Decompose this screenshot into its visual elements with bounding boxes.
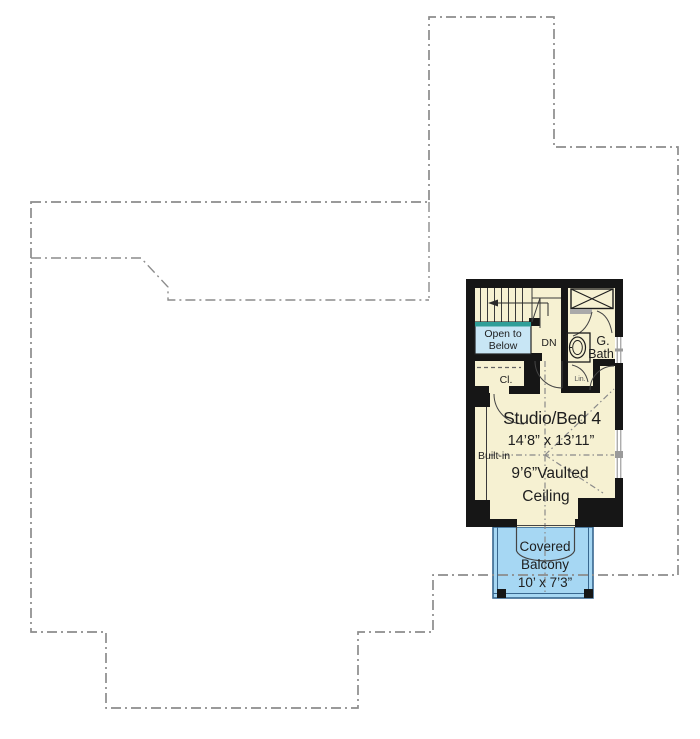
balcony-label-1: Covered bbox=[519, 539, 570, 554]
balcony-post-left bbox=[497, 589, 506, 598]
ceiling-label-1: 9’6”Vaulted bbox=[511, 465, 588, 482]
open-to-below-label-2: Below bbox=[489, 340, 518, 352]
shower-glass bbox=[570, 309, 592, 314]
room-name-label: Studio/Bed 4 bbox=[503, 408, 601, 428]
balcony-dims-label: 10’ x 7’3” bbox=[518, 575, 572, 590]
floor-plan-canvas: Open to Below DN Cl. G. Bath Lin. Studio… bbox=[0, 0, 700, 739]
balcony-post-right bbox=[584, 589, 593, 598]
room-dims-label: 14’8” x 13’11” bbox=[508, 433, 595, 449]
linen-label: Lin. bbox=[574, 376, 585, 383]
window-bath bbox=[615, 337, 623, 363]
open-to-below-edge bbox=[475, 322, 531, 327]
bath-label-2: Bath bbox=[588, 347, 614, 361]
bath-label-1: G. bbox=[596, 334, 609, 348]
window-studio bbox=[615, 430, 623, 478]
built-in-label: Built-in bbox=[478, 450, 510, 462]
ceiling-label-2: Ceiling bbox=[522, 488, 569, 505]
open-to-below-label-1: Open to bbox=[484, 328, 522, 340]
closet-label: Cl. bbox=[500, 374, 513, 386]
balcony-label-2: Balcony bbox=[521, 557, 569, 572]
roof-break-lines bbox=[31, 202, 429, 300]
stairs-dn-label: DN bbox=[541, 337, 556, 349]
window-mullion bbox=[615, 451, 623, 458]
floor-plan-page: Open to Below DN Cl. G. Bath Lin. Studio… bbox=[0, 0, 700, 739]
